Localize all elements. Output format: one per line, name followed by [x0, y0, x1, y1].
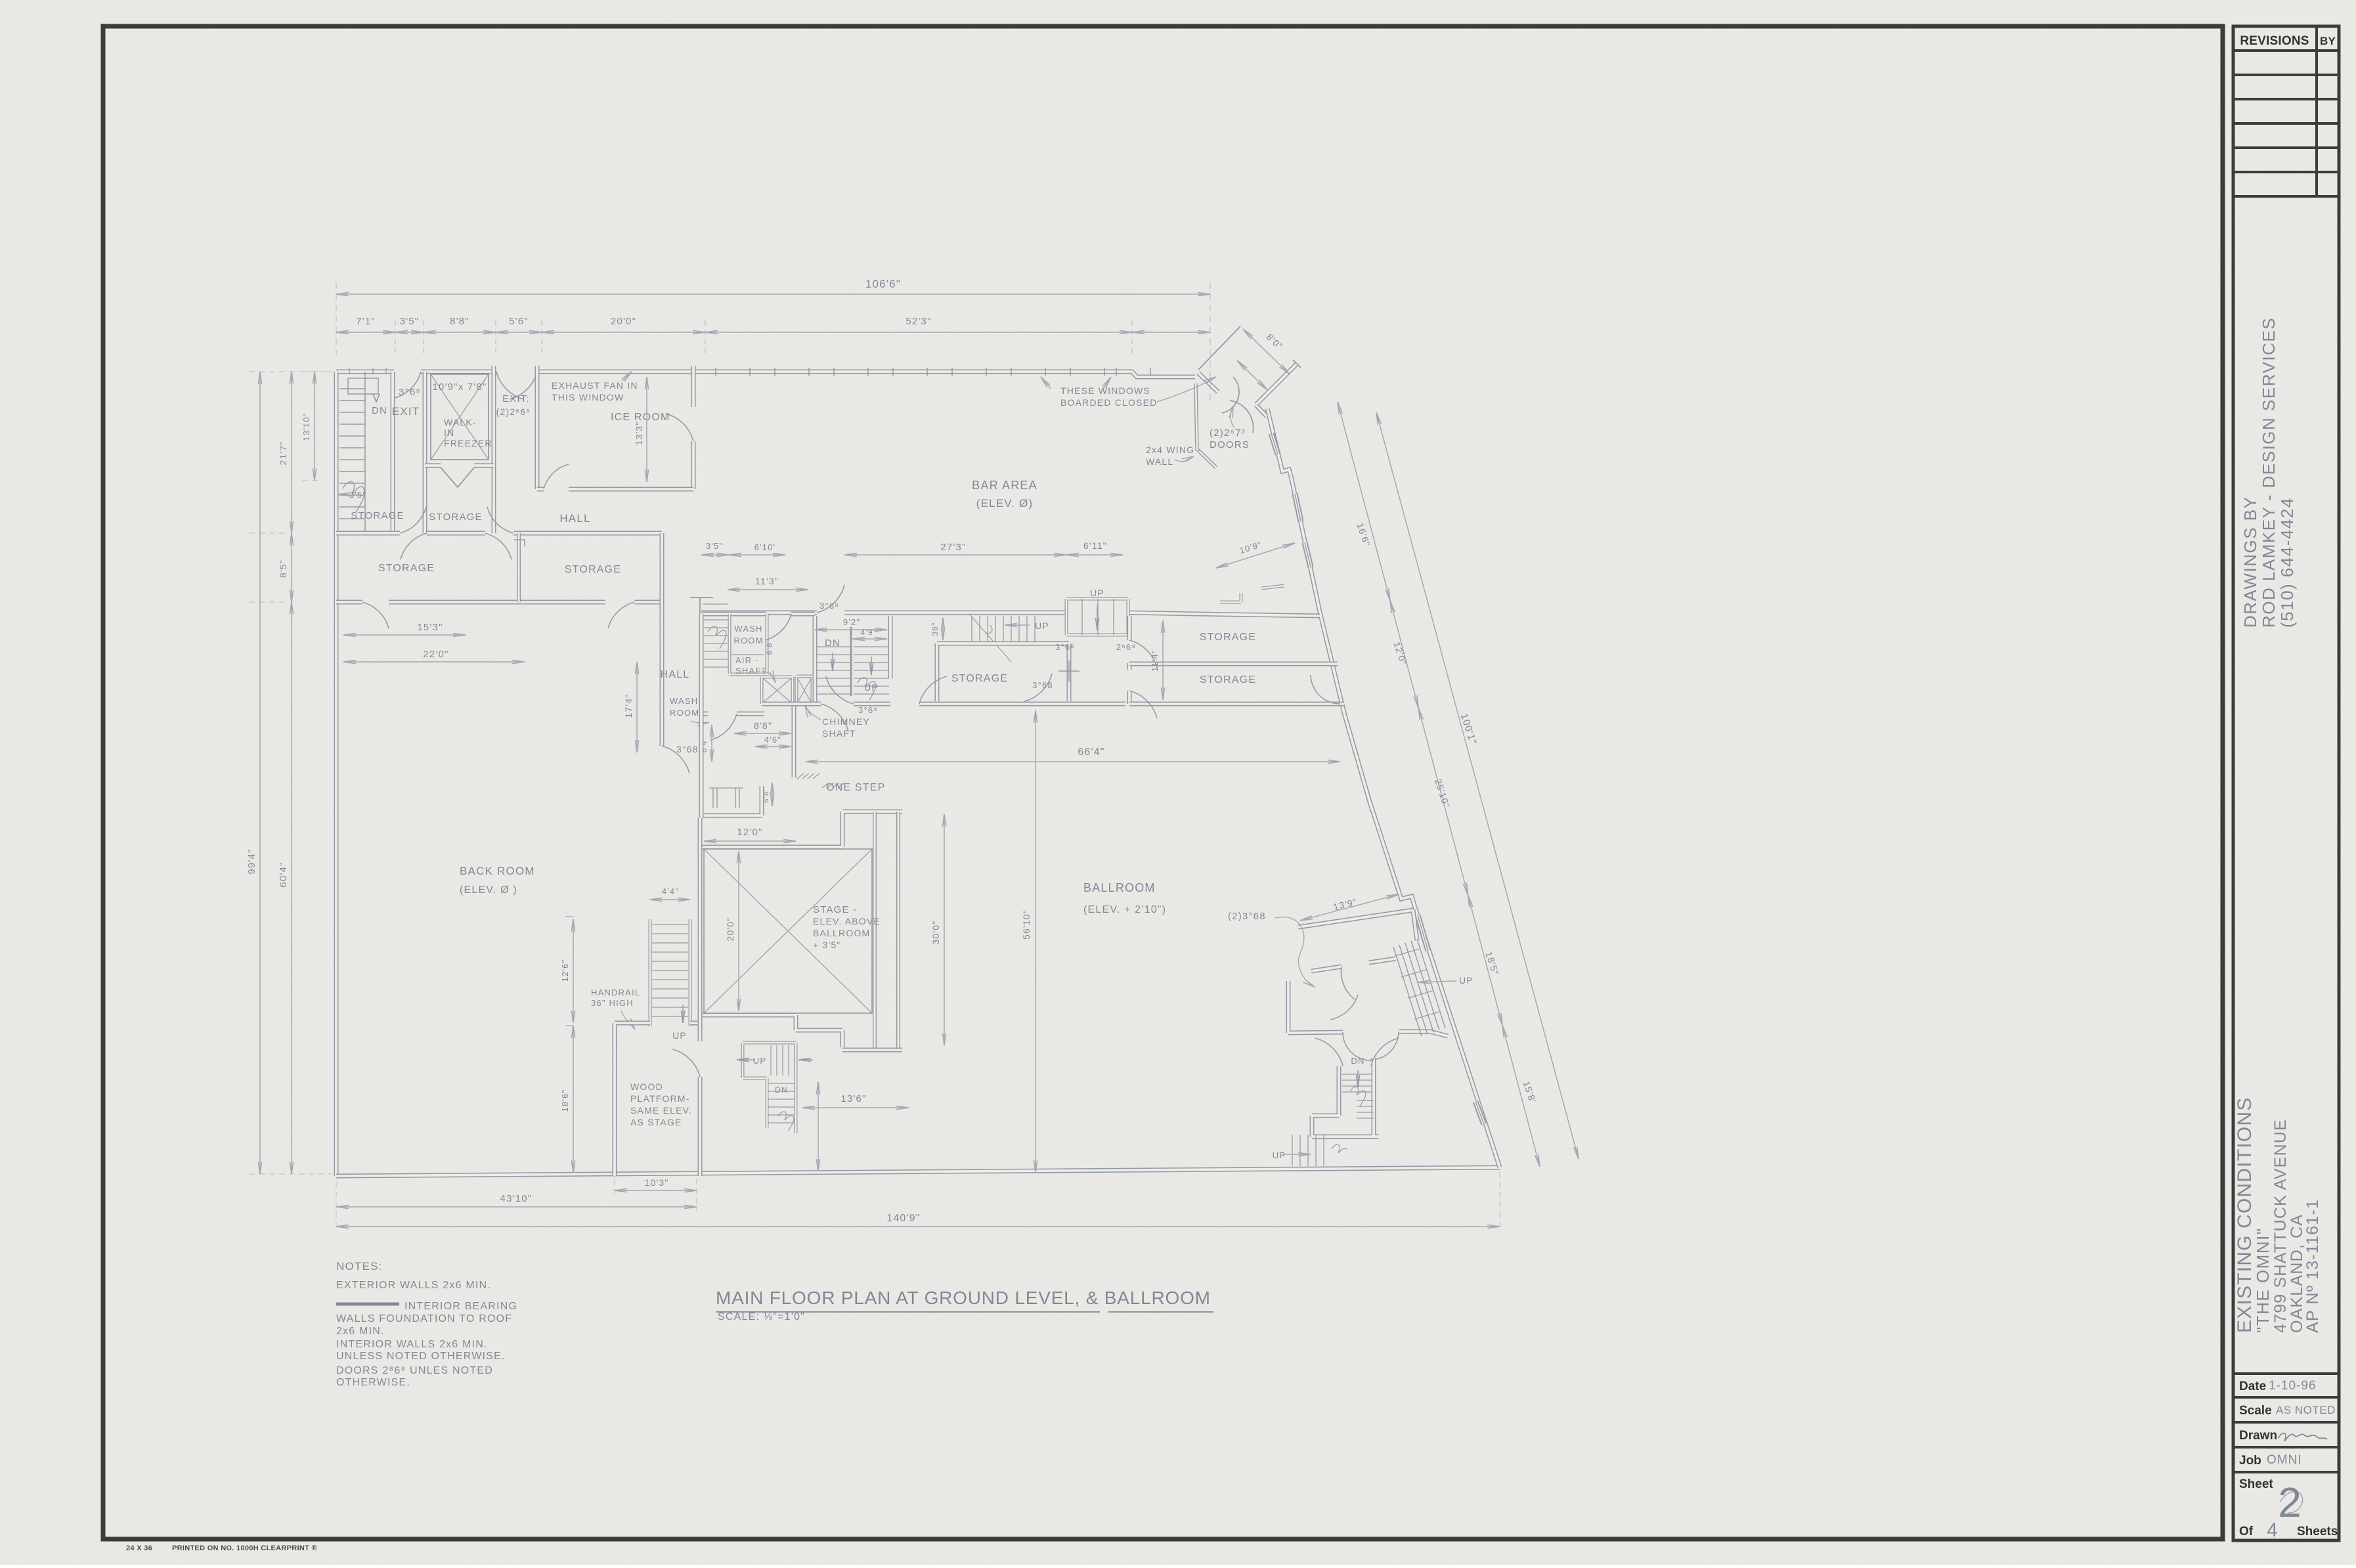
svg-text:2x4 WING -: 2x4 WING - — [1146, 445, 1202, 455]
svg-text:FREEZER: FREEZER — [444, 438, 492, 448]
svg-text:Job: Job — [2239, 1454, 2261, 1468]
svg-text:22'0": 22'0" — [423, 649, 448, 660]
svg-text:ROOM: ROOM — [670, 708, 699, 718]
svg-text:BACK ROOM: BACK ROOM — [460, 865, 535, 877]
svg-text:HALL: HALL — [661, 669, 690, 680]
svg-text:AP Nº 13-1161-1: AP Nº 13-1161-1 — [2303, 1199, 2322, 1333]
svg-text:WALK-: WALK- — [444, 417, 477, 427]
svg-text:4'6": 4'6" — [764, 735, 781, 745]
svg-text:AS NOTED: AS NOTED — [2276, 1404, 2336, 1416]
svg-text:(2)3°68: (2)3°68 — [1228, 911, 1266, 922]
svg-text:SAME ELEV.: SAME ELEV. — [630, 1105, 692, 1116]
svg-text:DN: DN — [825, 638, 840, 649]
svg-text:20'0": 20'0" — [725, 917, 735, 941]
svg-text:56'10": 56'10" — [1021, 909, 1032, 940]
svg-text:43'10": 43'10" — [500, 1193, 533, 1204]
svg-text:BY: BY — [2320, 35, 2336, 47]
svg-text:STORAGE: STORAGE — [1200, 674, 1256, 686]
svg-text:3°6⁸: 3°6⁸ — [1055, 642, 1075, 652]
svg-text:6'8': 6'8' — [762, 789, 770, 802]
svg-text:REVISIONS: REVISIONS — [2240, 34, 2309, 48]
svg-text:4'4": 4'4" — [662, 886, 679, 896]
svg-text:3°6⁸: 3°6⁸ — [858, 705, 878, 715]
svg-text:9'2": 9'2" — [843, 617, 860, 627]
svg-text:WALL: WALL — [1146, 456, 1173, 467]
svg-text:STORAGE: STORAGE — [351, 510, 404, 521]
svg-text:MAIN FLOOR PLAN AT GROUND: MAIN FLOOR PLAN AT GROUND LEVEL, & BALLR… — [716, 1288, 1211, 1308]
svg-text:PLATFORM-: PLATFORM- — [630, 1093, 690, 1104]
svg-text:BALLROOM: BALLROOM — [813, 928, 870, 938]
svg-text:DOORS: DOORS — [1210, 439, 1250, 450]
svg-text:10'3": 10'3" — [644, 1177, 668, 1188]
svg-text:DN: DN — [775, 1085, 788, 1095]
svg-text:UP: UP — [753, 1056, 766, 1066]
svg-text:WASH-: WASH- — [670, 696, 702, 706]
svg-text:20'0": 20'0" — [611, 316, 636, 327]
svg-text:INTERIOR BEARING: INTERIOR BEARING — [404, 1301, 517, 1312]
svg-text:Sheet: Sheet — [2239, 1477, 2273, 1491]
svg-text:3°6⁸: 3°6⁸ — [819, 601, 839, 611]
svg-text:IN: IN — [444, 427, 454, 438]
svg-text:UNLESS NOTED OTHERWISE.: UNLESS NOTED OTHERWISE. — [336, 1351, 506, 1362]
svg-text:WOOD: WOOD — [630, 1081, 663, 1092]
svg-text:PRINTED ON NO. 1000H CLEARPRIN: PRINTED ON NO. 1000H CLEARPRINT ® — [172, 1544, 317, 1552]
svg-text:OMNI: OMNI — [2267, 1453, 2302, 1467]
svg-text:BOARDED CLOSED: BOARDED CLOSED — [1060, 397, 1158, 408]
svg-text:UP: UP — [1273, 1150, 1286, 1160]
svg-text:STAGE -: STAGE - — [813, 904, 857, 915]
svg-text:12'6": 12'6" — [560, 959, 570, 982]
svg-text:INTERIOR WALLS 2x6 MIN.: INTERIOR WALLS 2x6 MIN. — [336, 1339, 488, 1350]
svg-text:Drawn: Drawn — [2239, 1429, 2277, 1443]
svg-text:(2)2⁶6⁸: (2)2⁶6⁸ — [496, 406, 531, 417]
svg-text:60'4": 60'4" — [278, 861, 289, 887]
svg-text:STORAGE: STORAGE — [1200, 632, 1256, 643]
svg-text:DRAWINGS BY: DRAWINGS BY — [2240, 496, 2260, 628]
svg-text:8'5": 8'5" — [278, 559, 288, 578]
svg-text:4799 SHATTUCK AVENUE: 4799 SHATTUCK AVENUE — [2271, 1119, 2290, 1333]
svg-text:UP: UP — [1459, 975, 1473, 986]
svg-text:HANDRAIL: HANDRAIL — [591, 988, 640, 997]
svg-text:10'9"x 7'8": 10'9"x 7'8" — [433, 381, 487, 393]
svg-text:1-10-96: 1-10-96 — [2269, 1379, 2317, 1393]
svg-text:BALLROOM: BALLROOM — [1083, 881, 1156, 894]
svg-text:5'6": 5'6" — [509, 316, 529, 327]
svg-text:SHAFT: SHAFT — [822, 728, 856, 739]
svg-text:21'7": 21'7" — [278, 441, 288, 465]
svg-text:Date: Date — [2239, 1380, 2266, 1393]
svg-text:UP: UP — [672, 1030, 687, 1041]
svg-text:18'6": 18'6" — [560, 1089, 570, 1112]
svg-text:52'3": 52'3" — [905, 316, 931, 327]
svg-text:24 X 36: 24 X 36 — [126, 1544, 152, 1552]
svg-text:STORAGE: STORAGE — [378, 563, 435, 574]
svg-text:(510) 644-4424: (510) 644-4424 — [2277, 497, 2297, 628]
svg-text:NOTES:: NOTES: — [336, 1260, 383, 1273]
svg-text:EXIT:: EXIT: — [502, 393, 530, 404]
svg-text:THESE WINDOWS: THESE WINDOWS — [1060, 385, 1150, 396]
svg-text:WALLS FOUNDATION TO ROOF: WALLS FOUNDATION TO ROOF — [336, 1313, 512, 1324]
svg-text:OTHERWISE.: OTHERWISE. — [336, 1377, 410, 1388]
svg-text:2⁶6⁸: 2⁶6⁸ — [1116, 642, 1136, 652]
svg-text:STORAGE: STORAGE — [951, 673, 1008, 684]
svg-text:8'8": 8'8" — [754, 720, 772, 731]
svg-text:EXHAUST FAN IN: EXHAUST FAN IN — [552, 380, 638, 391]
svg-text:11'3": 11'3" — [755, 576, 779, 586]
svg-text:8'8": 8'8" — [450, 316, 469, 327]
svg-text:EXIT: EXIT — [392, 405, 420, 418]
svg-text:WASH: WASH — [734, 624, 762, 634]
svg-text:DN: DN — [1351, 1056, 1364, 1066]
svg-text:13'10": 13'10" — [301, 412, 311, 441]
svg-text:UP: UP — [1035, 621, 1049, 631]
svg-text:17'4": 17'4" — [623, 693, 634, 718]
svg-text:6'10': 6'10' — [754, 542, 776, 552]
svg-text:13'6": 13'6" — [840, 1093, 866, 1104]
svg-text:THIS WINDOW: THIS WINDOW — [552, 392, 624, 403]
svg-text:SCALE: ⅛"=1'0": SCALE: ⅛"=1'0" — [718, 1311, 805, 1322]
svg-text:AIR -: AIR - — [735, 655, 759, 665]
svg-text:STORAGE: STORAGE — [429, 512, 482, 523]
svg-text:3'5": 3'5" — [400, 316, 420, 327]
svg-text:12'0": 12'0" — [737, 827, 762, 838]
svg-text:3'5": 3'5" — [349, 490, 366, 500]
svg-text:ROD LAMKEY - DESIGN SERVICES: ROD LAMKEY - DESIGN SERVICES — [2259, 317, 2279, 628]
svg-text:(2)2⁶7³: (2)2⁶7³ — [1210, 427, 1246, 439]
svg-text:Sheets: Sheets — [2297, 1525, 2338, 1538]
svg-text:140'9": 140'9" — [886, 1213, 921, 1224]
svg-text:7'1": 7'1" — [356, 316, 376, 327]
svg-text:4'9": 4'9" — [861, 628, 877, 637]
svg-text:(ELEV. Ø ): (ELEV. Ø ) — [460, 884, 517, 896]
svg-text:66'4": 66'4" — [1078, 747, 1104, 758]
svg-text:ICE ROOM: ICE ROOM — [611, 412, 670, 423]
svg-text:3'5": 3'5" — [706, 541, 723, 551]
svg-text:HALL: HALL — [559, 512, 590, 525]
svg-text:AS STAGE: AS STAGE — [630, 1117, 682, 1127]
svg-text:36": 36" — [930, 622, 940, 636]
svg-text:UP: UP — [1090, 588, 1104, 598]
svg-text:106'6": 106'6" — [865, 278, 901, 290]
svg-text:30'0": 30'0" — [930, 920, 941, 944]
svg-text:(ELEV. + 2'10"): (ELEV. + 2'10") — [1083, 904, 1166, 915]
svg-text:4: 4 — [2267, 1519, 2278, 1541]
svg-text:6'8': 6'8' — [765, 640, 774, 655]
svg-text:6'11": 6'11" — [1083, 540, 1107, 551]
svg-text:DOORS 2⁸6⁸ UNLES NOTED: DOORS 2⁸6⁸ UNLES NOTED — [336, 1365, 493, 1376]
svg-text:3°68: 3°68 — [1032, 680, 1053, 690]
svg-text:DN: DN — [372, 405, 387, 416]
svg-text:Of: Of — [2239, 1525, 2254, 1538]
svg-text:3°6⁸: 3°6⁸ — [399, 387, 421, 398]
svg-text:27'3": 27'3" — [940, 542, 966, 553]
svg-text:11'4": 11'4" — [1150, 649, 1160, 672]
svg-text:"THE OMNI": "THE OMNI" — [2253, 1227, 2273, 1333]
svg-text:15'3": 15'3" — [417, 622, 443, 633]
svg-text:+ 3'5": + 3'5" — [813, 940, 840, 950]
svg-text:EXTERIOR WALLS 2x6 MIN.: EXTERIOR WALLS 2x6 MIN. — [336, 1280, 491, 1291]
svg-text:99'4": 99'4" — [246, 848, 257, 874]
svg-text:13'3": 13'3" — [634, 421, 644, 445]
svg-text:SHAFT: SHAFT — [735, 666, 768, 676]
svg-text:2: 2 — [2278, 1479, 2301, 1526]
svg-text:36" HIGH: 36" HIGH — [591, 998, 634, 1008]
svg-text:ONE STEP: ONE STEP — [826, 782, 886, 793]
svg-text:BAR AREA: BAR AREA — [972, 479, 1037, 492]
svg-text:STORAGE: STORAGE — [565, 564, 621, 575]
svg-text:2x6 MIN.: 2x6 MIN. — [336, 1326, 385, 1337]
svg-text:(ELEV. Ø): (ELEV. Ø) — [976, 497, 1034, 510]
svg-text:ELEV. ABOVE: ELEV. ABOVE — [813, 916, 881, 926]
svg-text:Scale: Scale — [2239, 1404, 2272, 1418]
svg-text:ROOM: ROOM — [733, 636, 763, 645]
svg-text:3°68: 3°68 — [676, 744, 699, 754]
